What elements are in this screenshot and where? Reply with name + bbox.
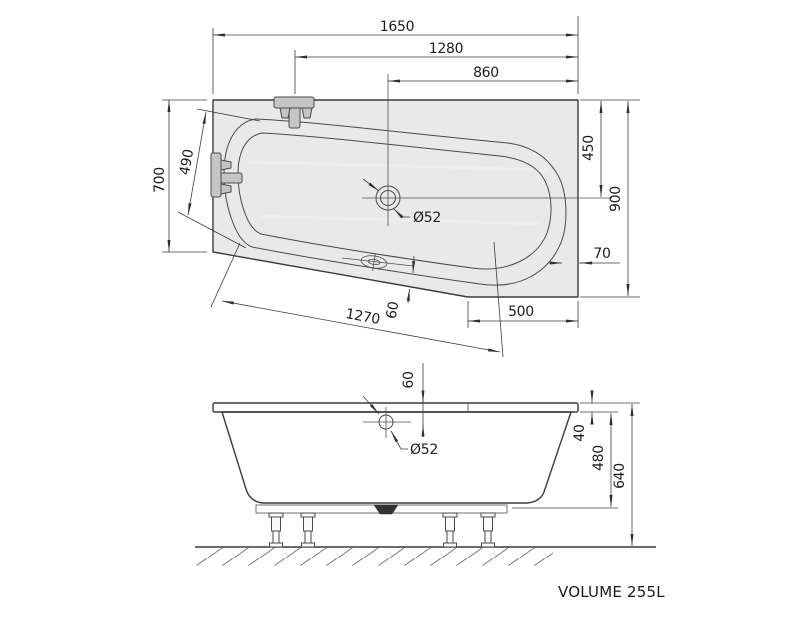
dim-right-upper: 450 xyxy=(580,100,640,197)
tub-side-body xyxy=(222,412,571,503)
floor-hatching xyxy=(196,548,553,566)
leg xyxy=(269,513,283,547)
svg-text:60: 60 xyxy=(384,300,403,320)
dim-corner-cut: 500 xyxy=(468,301,578,328)
svg-text:70: 70 xyxy=(593,246,610,262)
svg-text:490: 490 xyxy=(177,148,197,176)
overflow-diameter-label: Ø52 xyxy=(410,442,438,458)
dim-rim-to-overflow: 60 xyxy=(401,363,423,437)
overflow-side: Ø52 xyxy=(363,396,438,458)
svg-text:1280: 1280 xyxy=(429,41,463,57)
dim-left-width: 700 xyxy=(152,100,207,252)
support-legs xyxy=(269,513,495,547)
svg-text:480: 480 xyxy=(591,445,607,471)
volume-label: VOLUME 255L xyxy=(558,583,665,601)
svg-text:1650: 1650 xyxy=(380,19,414,35)
svg-text:40: 40 xyxy=(572,424,588,441)
dim-rim-height: 40 xyxy=(572,390,640,442)
svg-text:640: 640 xyxy=(612,463,628,489)
tub-rim xyxy=(213,403,578,412)
dim-right-width: 900 xyxy=(580,101,640,297)
dim-inner-depth: 480 xyxy=(512,413,618,508)
drawing-page: Ø52 1650 1280 860 xyxy=(0,0,800,620)
dim-overall-height: 640 xyxy=(612,404,632,546)
svg-text:900: 900 xyxy=(608,186,624,212)
leg xyxy=(481,513,495,547)
leg xyxy=(301,513,315,547)
top-view: Ø52 1650 1280 860 xyxy=(152,16,640,357)
leg xyxy=(443,513,457,547)
dim-drain-to-right: 860 xyxy=(388,65,578,81)
dim-faucet-to-right: 1280 xyxy=(295,41,578,94)
svg-text:500: 500 xyxy=(508,304,534,320)
bathtub-drawing: Ø52 1650 1280 860 xyxy=(0,0,800,620)
drain-diameter-label: Ø52 xyxy=(413,210,441,226)
side-view: Ø52 60 40 480 640 xyxy=(195,363,656,566)
svg-text:700: 700 xyxy=(152,167,168,193)
svg-text:60: 60 xyxy=(401,371,417,388)
svg-text:450: 450 xyxy=(581,135,597,161)
dim-overall-length: 1650 xyxy=(213,16,578,94)
svg-text:860: 860 xyxy=(473,65,499,81)
